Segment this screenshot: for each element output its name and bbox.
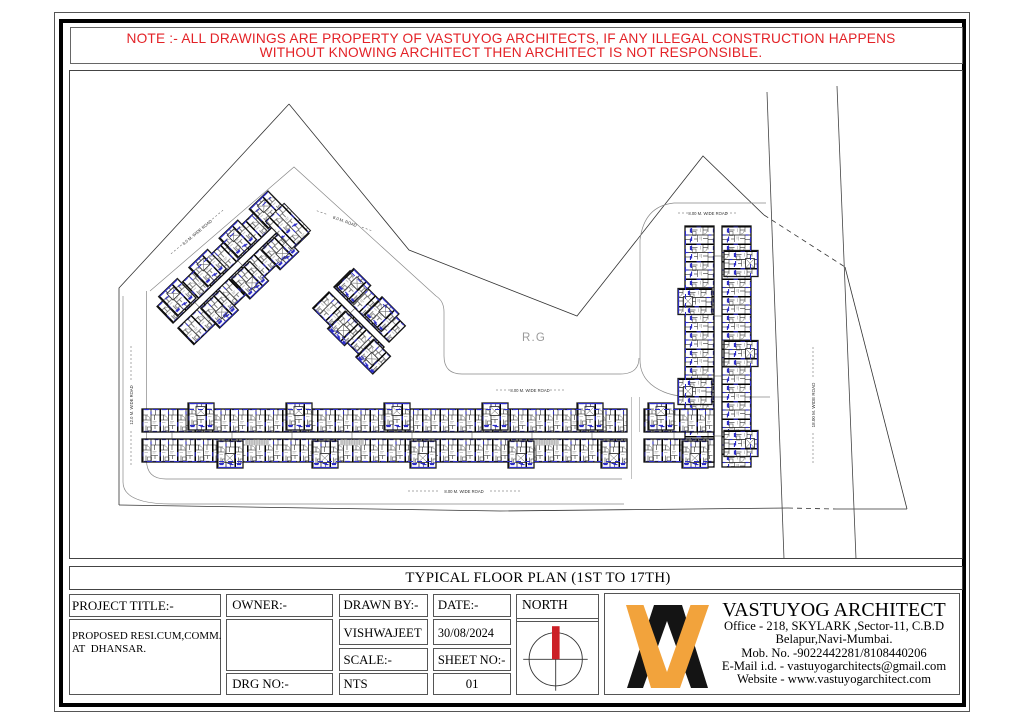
svg-text:12.0 M. WIDE ROAD: 12.0 M. WIDE ROAD (129, 385, 134, 424)
svg-text:R.G: R.G (522, 332, 546, 344)
svg-text:8.00 M. WIDE ROAD: 8.00 M. WIDE ROAD (510, 388, 549, 393)
svg-text:8.0 M. ROAD: 8.0 M. ROAD (332, 215, 357, 228)
svg-text:8.00 M. WIDE ROAD: 8.00 M. WIDE ROAD (444, 489, 483, 494)
svg-text:8.00 M. WIDE ROAD: 8.00 M. WIDE ROAD (688, 211, 727, 216)
svg-text:18.00 M. WIDE ROAD: 18.00 M. WIDE ROAD (811, 382, 816, 428)
svg-text:8.0 M. WIDE ROAD: 8.0 M. WIDE ROAD (181, 218, 213, 246)
